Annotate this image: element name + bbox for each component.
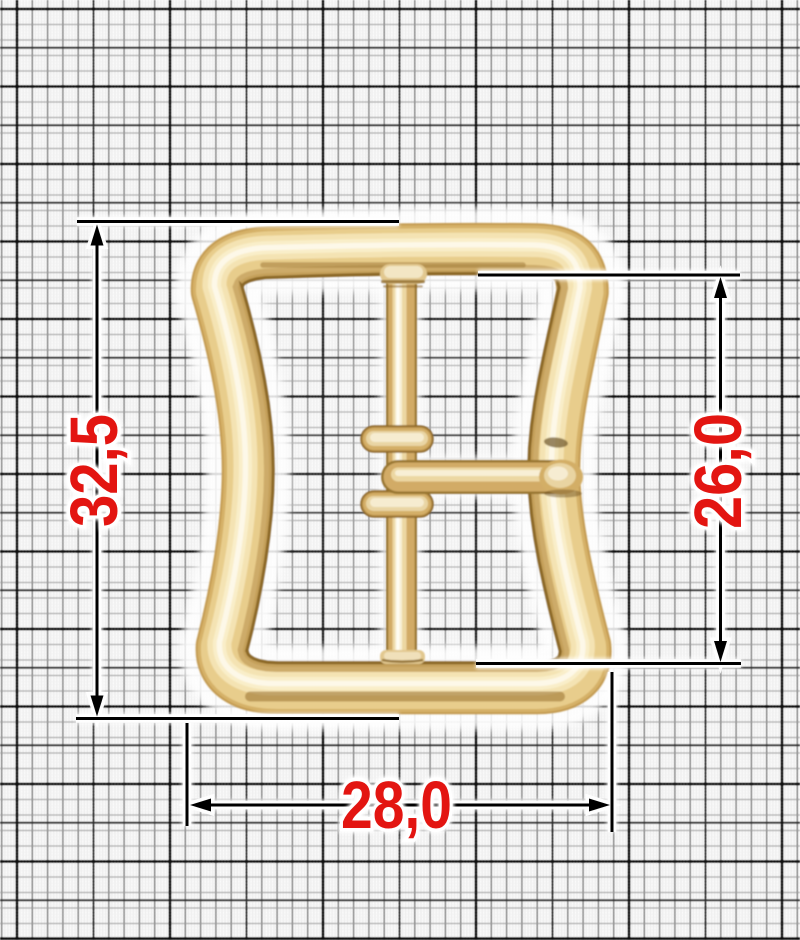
svg-text:32,5: 32,5 (57, 414, 132, 527)
svg-text:26,0: 26,0 (681, 413, 756, 529)
svg-text:28,0: 28,0 (341, 768, 452, 843)
